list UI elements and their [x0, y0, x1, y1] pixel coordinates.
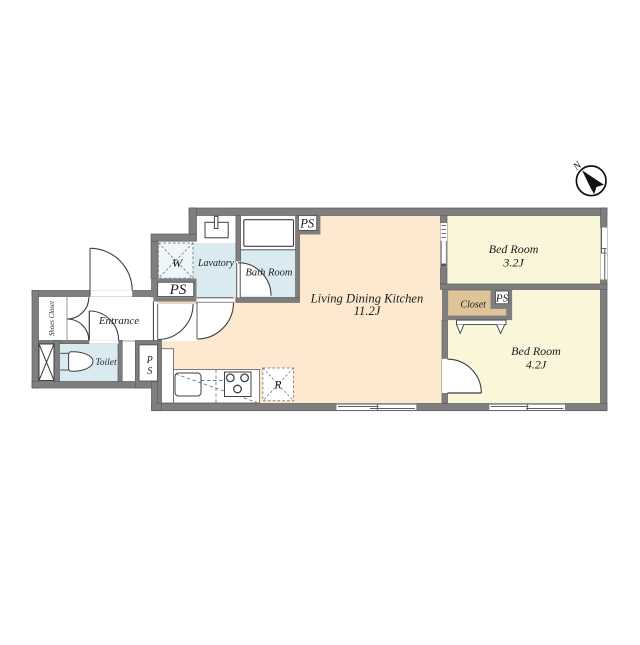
svg-text:3.2J: 3.2J	[502, 255, 524, 269]
svg-text:W: W	[172, 256, 183, 270]
svg-text:PS: PS	[299, 216, 315, 230]
svg-text:Toilet: Toilet	[95, 358, 117, 368]
svg-text:Lavatory: Lavatory	[197, 258, 235, 269]
svg-text:Bed Room: Bed Room	[511, 344, 561, 358]
svg-text:P: P	[146, 355, 153, 366]
svg-text:Bed Room: Bed Room	[489, 242, 539, 256]
svg-text:4.2J: 4.2J	[526, 358, 547, 372]
svg-text:PS: PS	[495, 292, 509, 304]
svg-text:Closet: Closet	[460, 300, 486, 311]
svg-text:PS: PS	[169, 282, 187, 298]
svg-text:11.2J: 11.2J	[354, 304, 382, 318]
svg-text:Bath Room: Bath Room	[246, 267, 293, 278]
svg-text:Entrance: Entrance	[98, 315, 139, 327]
svg-text:Shoes Closet: Shoes Closet	[49, 300, 56, 336]
svg-text:R: R	[273, 380, 281, 392]
svg-text:S: S	[147, 366, 152, 377]
